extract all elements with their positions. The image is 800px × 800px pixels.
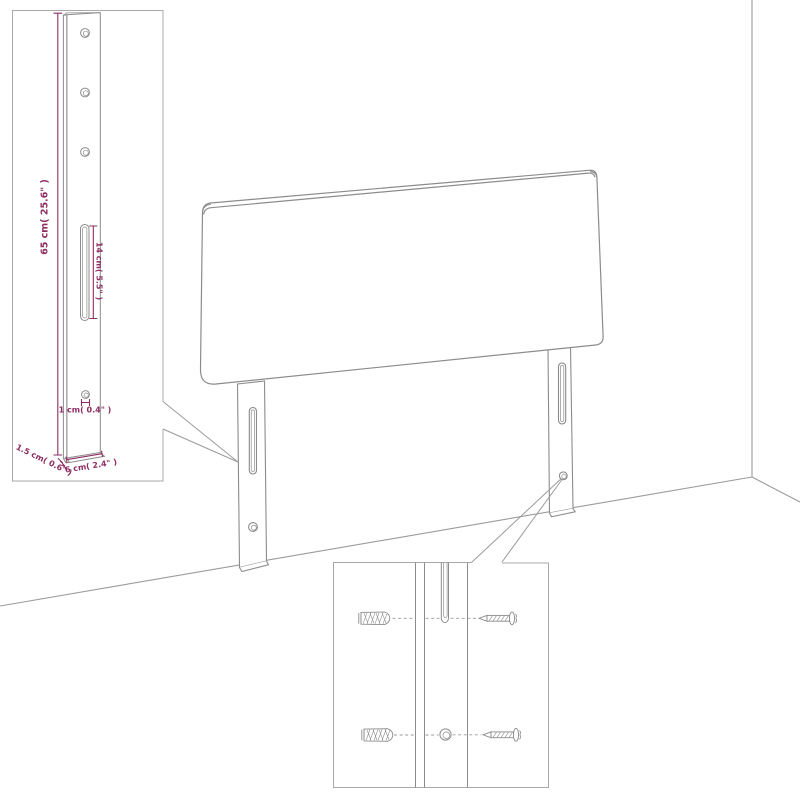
wall-plug-icon	[359, 612, 390, 625]
left-leg	[238, 381, 269, 572]
diagram-line-art	[0, 0, 800, 800]
wall-floor-line-right	[752, 477, 800, 502]
headboard-dimension-diagram: 65 cm( 25.6" ) 14 cm( 5.5" ) 1 cm( 0.4" …	[0, 0, 800, 800]
headboard-panel	[200, 170, 603, 384]
height-dimension-label: 65 cm( 25.6" )	[40, 179, 51, 255]
leg-enlarged	[63, 13, 104, 463]
slot-length-dimension-label: 14 cm( 5.5" )	[95, 242, 104, 300]
hole-diameter-dimension-label: 1 cm( 0.4" )	[59, 406, 112, 415]
mount-detail-inset	[334, 563, 549, 788]
right-leg	[548, 346, 575, 517]
wall-plug-icon	[362, 729, 393, 742]
callout-wedge-bottom	[472, 479, 563, 563]
callout-wedge-left	[163, 402, 238, 463]
